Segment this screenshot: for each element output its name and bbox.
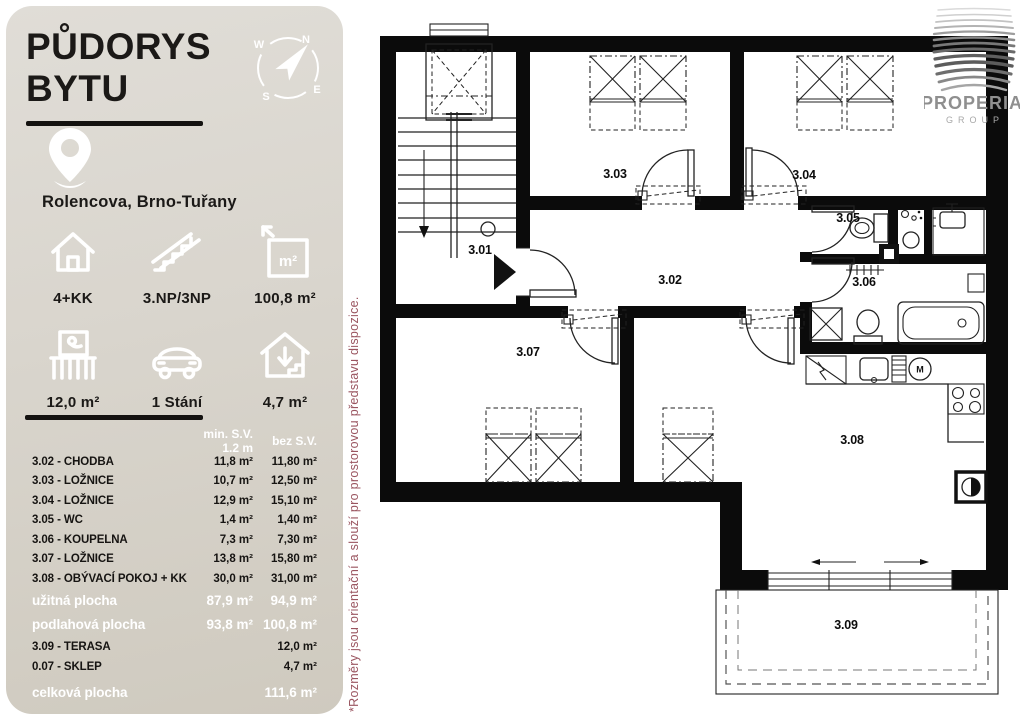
door-3-07 [612,318,618,364]
wardrobe [663,408,713,482]
kitchen-sink-icon [860,358,888,380]
room-label: 3.06 [852,275,876,289]
entrance-door [530,290,576,297]
wall-heater-icon [968,274,984,292]
door-3-03 [688,150,694,196]
wardrobe [486,408,531,482]
wardrobe [847,56,893,130]
logo-group-text: GROUP [946,115,1004,125]
room-label: 3.03 [603,167,627,181]
bathroom-fixtures [810,265,984,344]
door-3-04 [746,148,752,196]
wardrobe [590,56,635,130]
room-label: 3.07 [516,345,540,359]
room-label: 3.09 [834,618,858,632]
bathtub-icon [898,302,984,344]
door-3-08 [788,318,794,364]
logo-waves-icon [934,9,1014,91]
walls-layer [380,36,1008,590]
room-label: 3.08 [840,433,864,447]
logo-brand-text: PROPERIA [924,93,1020,113]
toilet-icon [857,310,879,334]
terrace-window [768,570,952,590]
washbasin-icon [903,232,919,248]
stove-icon [948,384,984,414]
wardrobe [640,56,686,130]
wardrobes-layer [486,56,893,482]
toilet-tank [874,214,888,242]
staircase [398,24,530,296]
wardrobe [797,56,842,130]
kitchen-fixtures: M [806,356,986,502]
washer-glyph: M [916,365,924,375]
room-label: 3.01 [468,243,492,257]
sink-icon [940,212,965,228]
properia-logo: PROPERIA GROUP [924,2,1020,132]
room-label: 3.02 [658,273,682,287]
terrace-outline [716,590,998,694]
floor-plan-svg: M [0,0,1024,724]
wardrobe [536,408,581,482]
room-label: 3.05 [836,211,860,225]
room-label: 3.04 [792,168,816,182]
entrance-arrow-icon [494,254,516,290]
page: PŮDORYS BYTU N E S W Rolencova, Brno-Tuř… [0,0,1024,724]
